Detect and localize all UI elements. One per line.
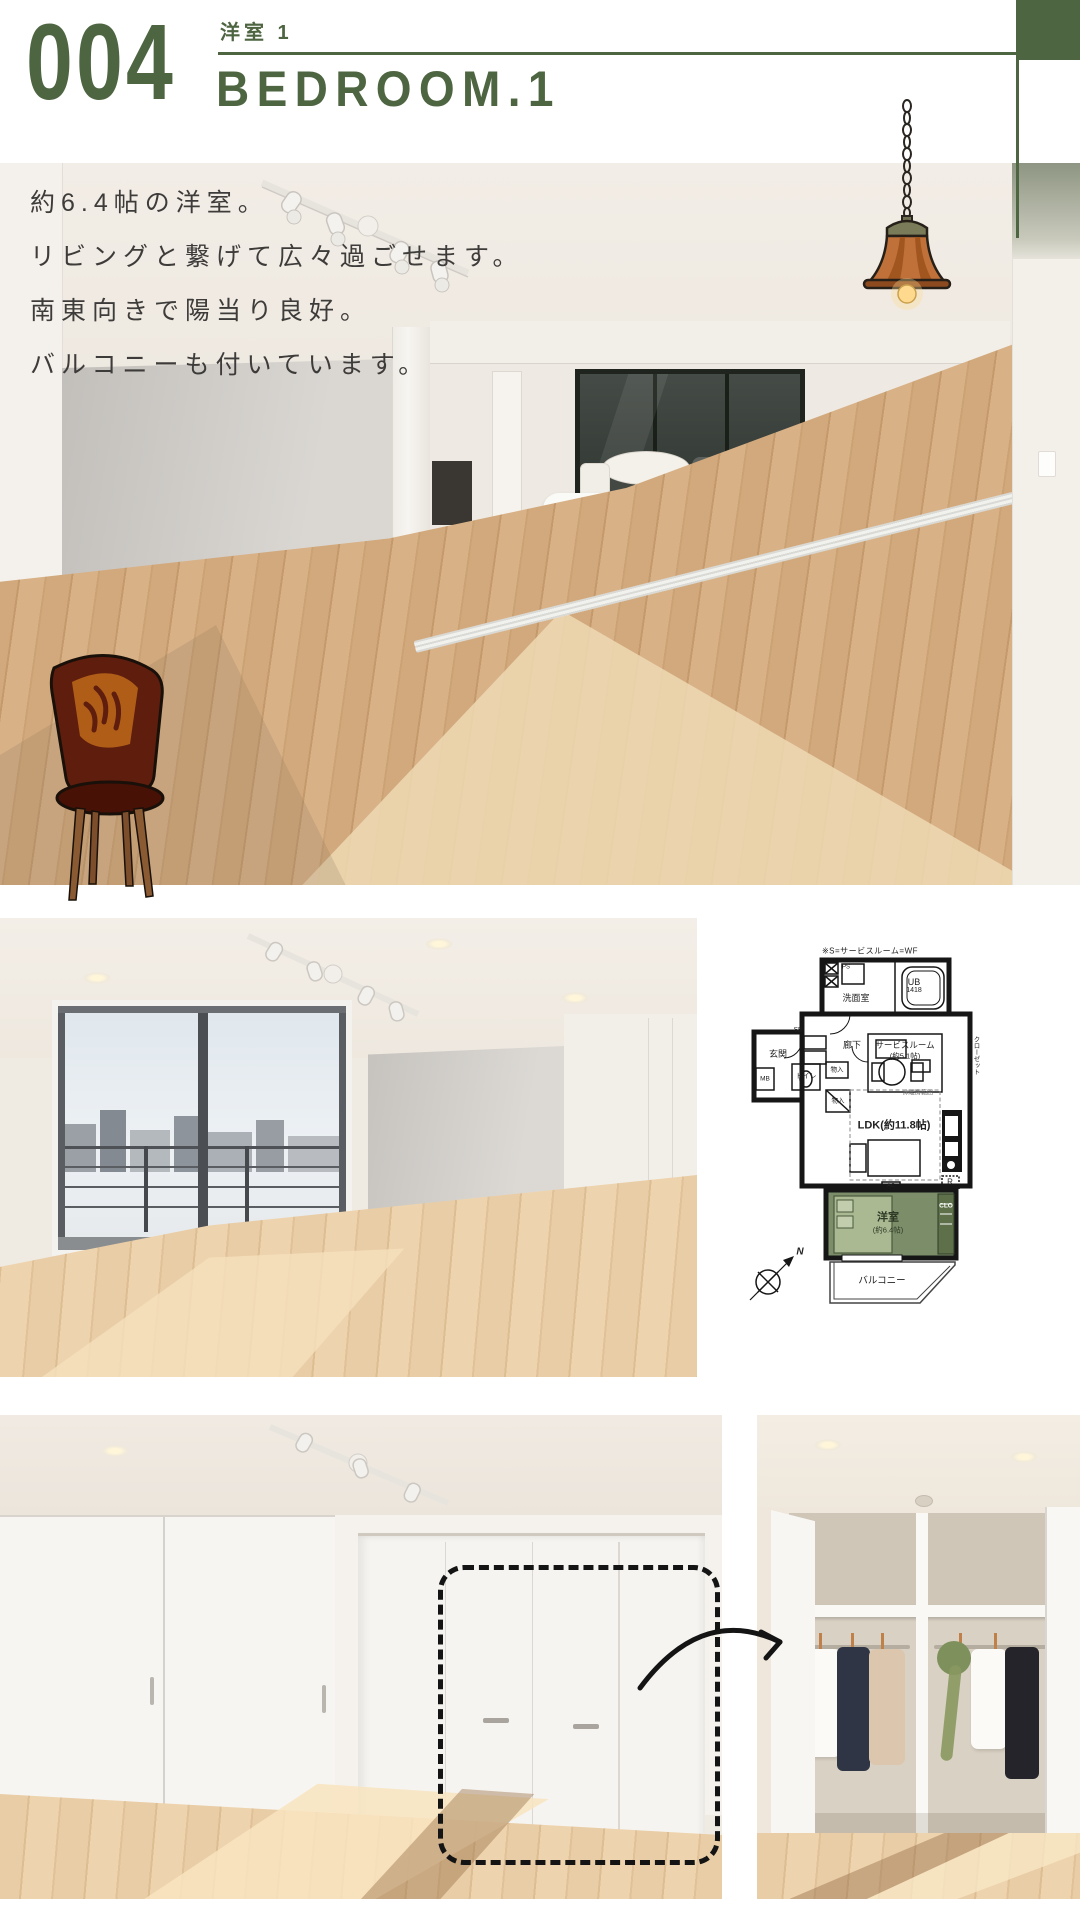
plan-label-closet: クローゼット [970,1036,980,1075]
downlight [420,936,458,952]
plan-label-ub: UB [908,977,921,987]
plan-label-washroom: 洗面室 [842,993,869,1003]
plan-label-entrance: 玄関 [769,1049,787,1059]
page-title: BEDROOM.1 [216,60,561,118]
plan-label-floor-heating: 床暖房範囲 [903,1091,933,1098]
hanger [881,1633,884,1649]
closet-interior [789,1513,1057,1843]
plan-label-bedroom: 洋室 [877,1212,899,1225]
plan-label-sb: SB [794,1026,803,1033]
corner-window [1012,163,1080,259]
tv-board [432,461,472,525]
downlight [556,990,594,1006]
property-listing-page: 004 洋室 1 BEDROOM.1 [0,0,1080,1905]
plan-label-storage-a: 物入 [831,1066,844,1073]
chair-illustration [26,648,198,910]
plan-label-hallway: 廊下 [843,1040,861,1050]
description-line: 南東向きで陽当り良好。 [30,284,524,338]
window-sash [198,1006,208,1250]
plan-label-toilet: トイレ [796,1073,817,1081]
black-dress [1005,1647,1039,1779]
description-line: 約6.4帖の洋室。 [30,176,524,230]
plan-label-ps: PS [842,965,850,972]
hanger [819,1633,822,1649]
floor-plan: ※S=サービスルーム=WF 洗面室 UB 1418 PS 玄関 SB 廊下 サー… [742,944,992,1316]
arrow-icon [628,1608,803,1703]
plan-label-bedroom-size: (約6.4帖) [873,1227,903,1236]
plan-label-ac: AC [887,1183,895,1189]
bedroom-window-photo [0,918,697,1377]
header-divider-line [218,52,1016,55]
accent-vertical-line [1016,60,1019,238]
description-line: リビングと繋げて広々過ごせます。 [30,230,524,284]
downlight [96,1443,134,1459]
window-sash [58,1006,65,1250]
plan-label-clo: CLO [939,1202,953,1209]
pendant-lamp-illustration [842,96,972,310]
rail-post [144,1146,148,1232]
compass-icon [750,1258,792,1300]
plan-label-ldk: LDK(約11.8帖) [858,1120,931,1133]
open-closet-photo [757,1415,1080,1899]
white-shirt [971,1649,1007,1749]
room-description: 約6.4帖の洋室。 リビングと繋げて広々過ごせます。 南東向きで陽当り良好。 バ… [30,176,524,392]
track-spotlight-icon [258,1417,458,1527]
center-divider [916,1513,928,1843]
rail-post [245,1146,249,1232]
right-wall [1012,259,1080,885]
plan-label-service-room-size: (約5.1帖) [890,1053,920,1062]
downlight [78,970,116,986]
door-handle [322,1685,326,1713]
section-number: 004 [26,8,176,116]
plan-label-fridge: R [947,1177,953,1186]
plan-label-storage-b: 物入 [832,1097,845,1104]
open-door-right [1045,1507,1080,1885]
hanger [994,1633,997,1649]
plan-label-mb: MB [760,1075,770,1082]
plan-note: ※S=サービスルーム=WF [822,946,918,955]
accent-square [1016,0,1080,60]
plan-label-north: N [796,1246,803,1258]
door-handle [150,1677,154,1705]
window-sash [58,1006,346,1013]
plan-label-ub-size: 1418 [906,987,922,995]
room-label-jp: 洋室 1 [220,16,293,45]
navy-garment [837,1647,870,1771]
plan-label-balcony: バルコニー [858,1277,905,1288]
downlight [1005,1449,1043,1465]
smoke-detector [915,1495,933,1507]
light-switch [1038,451,1056,477]
plan-label-service-room: サービスルーム [875,1041,934,1051]
description-line: バルコニーも付いています。 [30,338,524,392]
plant-vine [940,1665,962,1762]
beige-coat [869,1649,905,1765]
downlight [809,1437,847,1453]
